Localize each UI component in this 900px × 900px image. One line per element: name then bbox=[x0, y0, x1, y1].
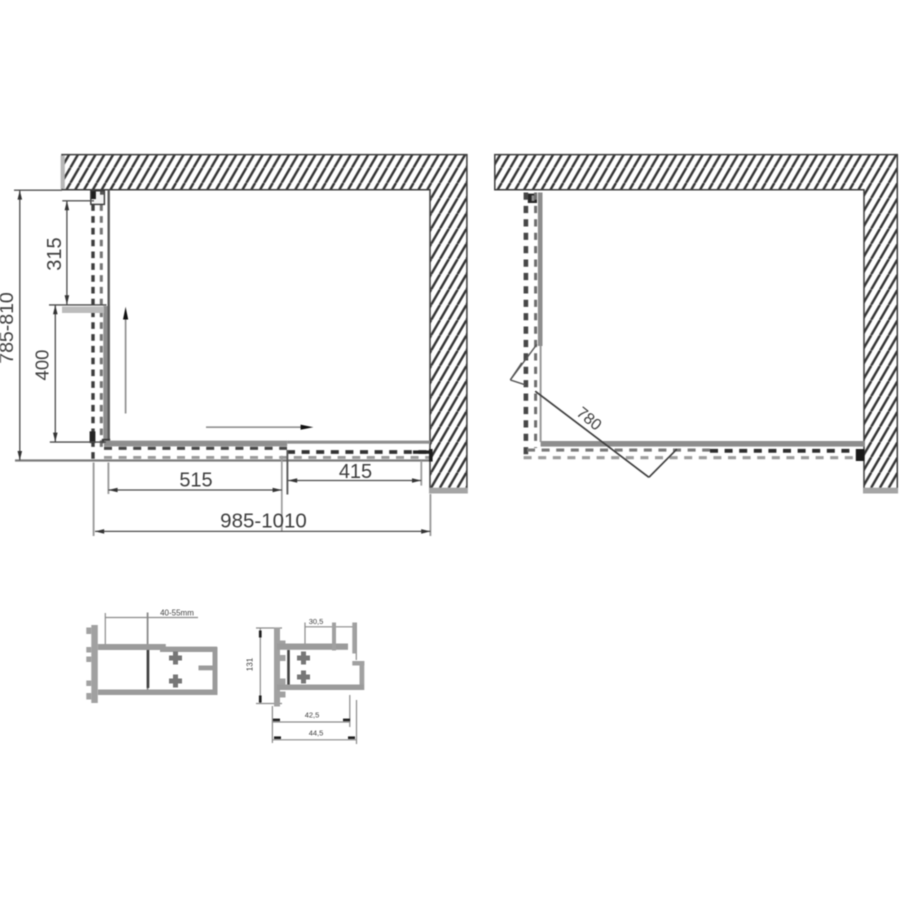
svg-text:780: 780 bbox=[573, 404, 605, 434]
svg-text:30,5: 30,5 bbox=[309, 617, 324, 626]
svg-text:400: 400 bbox=[31, 350, 52, 381]
svg-text:44,5: 44,5 bbox=[309, 729, 324, 738]
svg-text:785-810: 785-810 bbox=[0, 292, 18, 364]
svg-text:40-55mm: 40-55mm bbox=[160, 609, 194, 618]
svg-text:315: 315 bbox=[44, 237, 66, 270]
svg-text:415: 415 bbox=[339, 461, 372, 483]
svg-text:42,5: 42,5 bbox=[305, 711, 320, 720]
svg-text:515: 515 bbox=[179, 470, 212, 492]
svg-text:985-1010: 985-1010 bbox=[220, 510, 307, 533]
svg-text:131: 131 bbox=[246, 657, 255, 671]
